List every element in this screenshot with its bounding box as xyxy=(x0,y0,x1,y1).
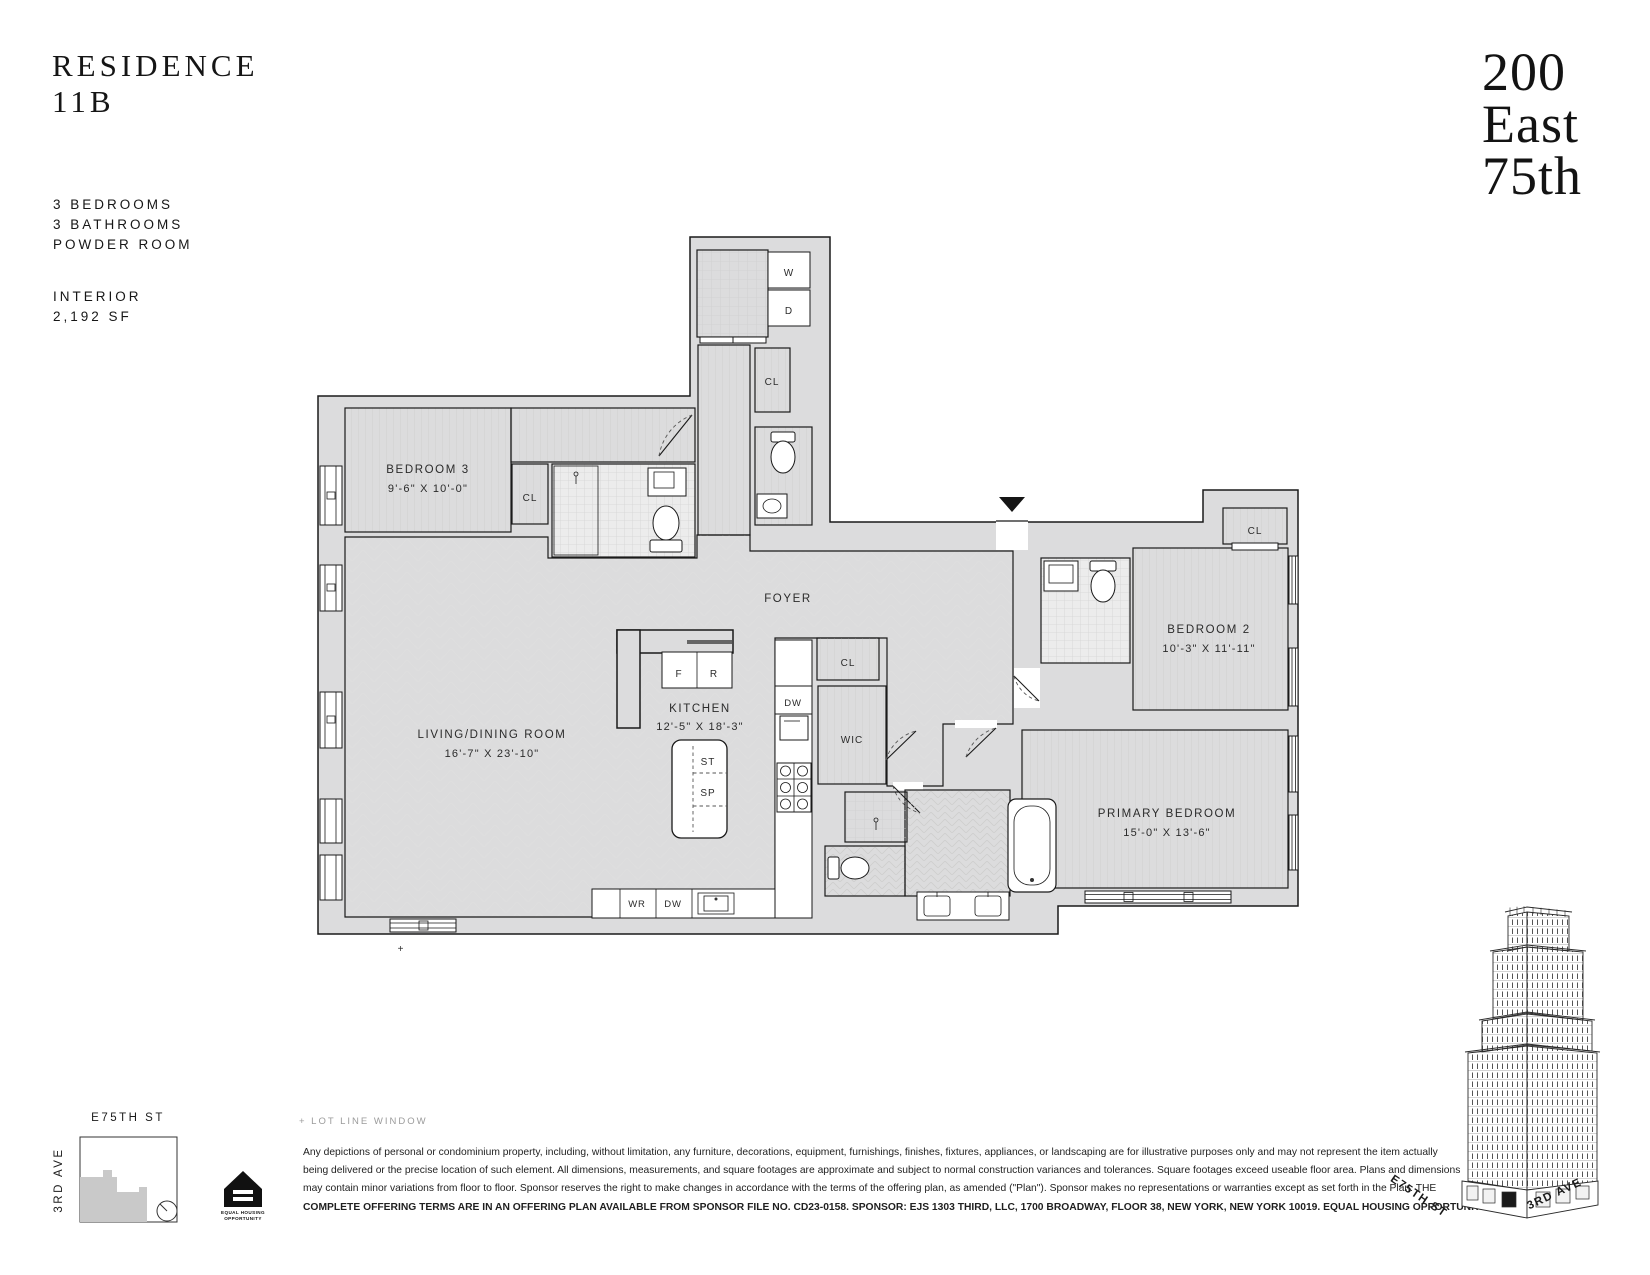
floorplan-sheet: { "header": { "title_line1": "RESIDENCE"… xyxy=(0,0,1650,1275)
closet-label: CL xyxy=(765,377,780,388)
primary-label: PRIMARY BEDROOM xyxy=(1098,808,1237,820)
closet-door xyxy=(1232,543,1278,550)
closet-label: CL xyxy=(1248,526,1263,537)
building-illustration xyxy=(1462,906,1600,1218)
laundry-door xyxy=(733,337,766,343)
tier4-right-face xyxy=(1527,912,1569,951)
toilet-tank xyxy=(650,540,682,552)
toilet-icon xyxy=(1091,570,1115,602)
bedroom3-dims: 9'-6" X 10'-0" xyxy=(388,483,468,495)
kitchen-label: KITCHEN xyxy=(669,703,731,715)
toilet-tank xyxy=(828,857,839,879)
primary-door-opening xyxy=(955,720,997,728)
living-dims: 16'-7" X 23'-10" xyxy=(445,748,540,760)
foyer-label: FOYER xyxy=(764,593,812,605)
sp-label: SP xyxy=(700,788,715,799)
laundry-door xyxy=(700,337,733,343)
shaft-right-face xyxy=(1527,1046,1597,1190)
wic-label: WIC xyxy=(841,735,863,746)
shaft-left-face xyxy=(1468,1046,1527,1190)
toilet-icon xyxy=(841,857,869,879)
bedroom2-door-opening xyxy=(1014,668,1040,708)
dishwasher-label: DW xyxy=(664,899,681,910)
tier3-right-face xyxy=(1527,947,1583,1020)
storage-label: ST xyxy=(701,757,716,768)
building-street-left: E75TH ST xyxy=(1388,1173,1449,1220)
kitchen-lower-counter xyxy=(592,889,775,918)
tub-drain-icon xyxy=(1030,878,1034,882)
oven-box xyxy=(780,716,808,740)
plan: W D CL BEDROOM 3 9'-6" X 10'-0" CL xyxy=(318,237,1298,955)
equal-housing-house-icon xyxy=(224,1171,262,1207)
kitchen-counter xyxy=(617,630,640,728)
toilet-icon xyxy=(771,441,795,473)
kitchen-dims: 12'-5" X 18'-3" xyxy=(656,721,744,733)
closet-label: CL xyxy=(523,493,538,504)
range-label: R xyxy=(710,669,718,680)
laundry-floor xyxy=(697,250,768,337)
tier2-left-face xyxy=(1482,1014,1527,1052)
building-entry-door xyxy=(1502,1192,1516,1207)
faucet-icon xyxy=(715,898,718,901)
primary-shower xyxy=(845,792,907,842)
floorplan-drawing: W D CL BEDROOM 3 9'-6" X 10'-0" CL xyxy=(0,0,1650,1275)
keyplan-street-side: 3RD AVE xyxy=(53,1147,65,1212)
equal-housing-line2: OPPORTUNITY xyxy=(224,1216,262,1221)
bath-door-opening xyxy=(893,782,923,790)
closet-label: CL xyxy=(841,658,856,669)
primary-bath-floor xyxy=(905,790,1010,896)
living-label: LIVING/DINING ROOM xyxy=(418,729,567,741)
powder-sink xyxy=(757,494,787,518)
lot-line-marker: + xyxy=(398,944,405,955)
bedroom2-label: BEDROOM 2 xyxy=(1167,624,1250,636)
dryer-label: D xyxy=(785,306,793,317)
equal-housing-line1: EQUAL HOUSING xyxy=(221,1210,265,1215)
equal-housing-logo: EQUAL HOUSING OPPORTUNITY xyxy=(221,1171,265,1221)
entry-opening xyxy=(996,520,1028,550)
fridge-label: F xyxy=(675,669,682,680)
tier3-left-face xyxy=(1493,947,1527,1019)
toilet-icon xyxy=(653,506,679,540)
bedroom2-dims: 10'-3" X 11'-11" xyxy=(1162,643,1255,655)
kitchen-hood xyxy=(687,640,732,644)
keyplan-street-top: E75TH ST xyxy=(91,1112,165,1124)
dishwasher-label: DW xyxy=(784,698,801,709)
entry-arrow-icon xyxy=(999,497,1025,512)
keyplan: E75TH ST 3RD AVE xyxy=(53,1112,177,1222)
bedroom3-label: BEDROOM 3 xyxy=(386,464,469,476)
wine-fridge-label: WR xyxy=(628,899,645,910)
primary-dims: 15'-0" X 13'-6" xyxy=(1123,827,1211,839)
stem-corridor xyxy=(698,345,750,535)
washer-label: W xyxy=(784,268,794,279)
